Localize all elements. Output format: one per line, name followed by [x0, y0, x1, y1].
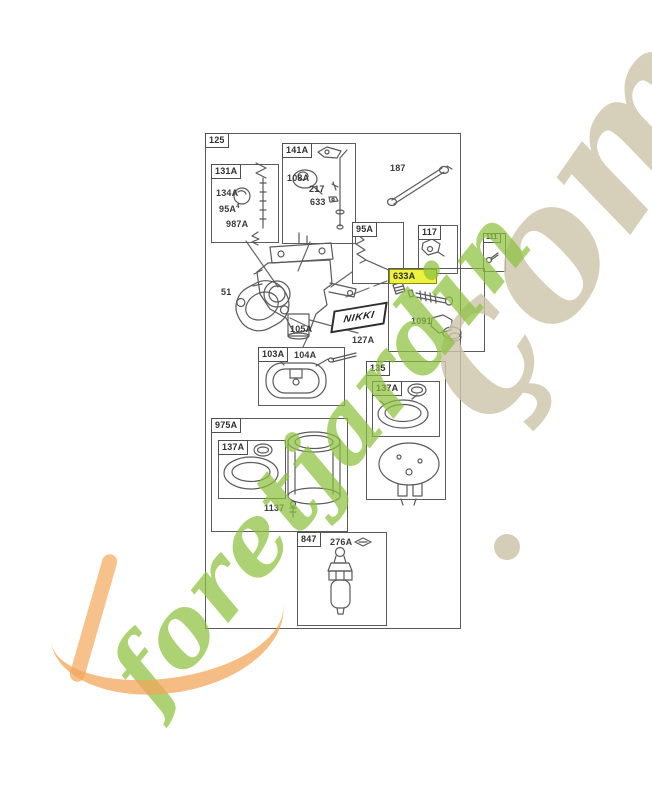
box-label-137A-in-135: 137A — [372, 381, 402, 396]
part-label-217: 217 — [309, 185, 325, 195]
box-label-975A: 975A — [211, 418, 241, 433]
part-label-51: 51 — [221, 288, 231, 298]
part-label-1137: 1137 — [264, 504, 284, 514]
part-label-987A: 987A — [226, 220, 248, 230]
box-label-95A: 95A — [352, 222, 377, 237]
part-label-1091: 1091 — [411, 317, 432, 327]
box-label-633A-highlighted: 633A — [389, 269, 437, 284]
part-label-127A: 127A — [352, 336, 374, 346]
part-label-95A-text: 95A — [219, 204, 236, 214]
part-label-187: 187 — [390, 164, 406, 174]
box-label-125: 125 — [205, 133, 229, 148]
box-label-117: 117 — [418, 225, 441, 240]
nikki-brand-text: NIKKI — [343, 310, 376, 326]
part-label-104A: 104A — [294, 351, 316, 361]
part-label-105A: 105A — [290, 325, 312, 335]
box-label-137A-in-975A: 137A — [218, 440, 248, 455]
part-label-108A: 108A — [287, 174, 309, 184]
parts-diagram-page: 125 131A 141A 95A 117 111 633A 103A 135 … — [0, 0, 652, 800]
box-label-141A: 141A — [282, 143, 312, 158]
box-label-111: 111 — [483, 233, 501, 243]
footnote-4: 4 — [236, 204, 240, 210]
part-label-633: 633 — [310, 198, 326, 208]
box-label-103A: 103A — [258, 347, 288, 362]
box-label-135: 135 — [366, 361, 390, 376]
box-label-847: 847 — [297, 532, 321, 547]
part-label-276A: 276A — [330, 538, 352, 548]
box-label-131A: 131A — [211, 164, 241, 179]
part-label-134A: 134A — [216, 189, 238, 199]
part-label-95A: 95A4 — [219, 204, 240, 215]
